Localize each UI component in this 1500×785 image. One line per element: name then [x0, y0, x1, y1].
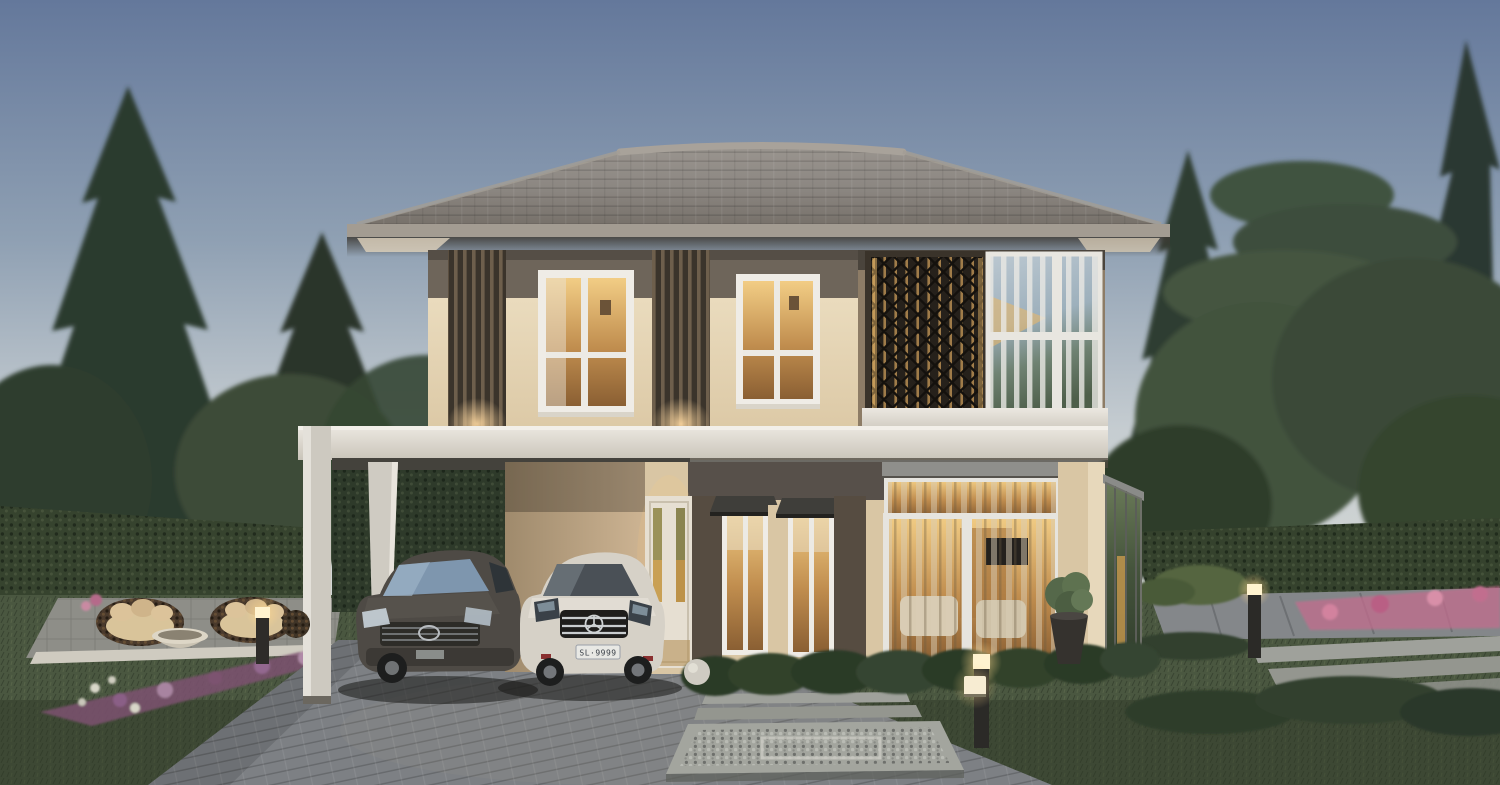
mercedes-grille: [560, 610, 628, 638]
pebble-platform: [666, 721, 964, 782]
wicker-sphere: [282, 610, 310, 638]
scene-photo: SL·9999: [0, 0, 1500, 785]
license-plate: SL·9999: [576, 645, 620, 659]
eave-fascia: [347, 224, 1170, 237]
ground-floor: [637, 462, 1105, 674]
recess-band-dark: [688, 462, 886, 500]
sliding-glass-door: [882, 462, 1062, 662]
stone-sphere-highlight: [688, 663, 698, 673]
bedroom-window-left: [538, 270, 634, 417]
lattice-bay: [858, 250, 1108, 437]
corner-glass-window: [988, 254, 1100, 418]
slat-column-center: [651, 250, 711, 450]
house-render: SL·9999: [0, 0, 1500, 785]
ground-cube-light: [952, 663, 998, 709]
lattice-screen: [868, 254, 986, 420]
toyota-grille: [380, 622, 480, 646]
conservatory: [1103, 474, 1144, 655]
upper-floor: [428, 250, 1108, 450]
license-plate-text: SL·9999: [579, 649, 616, 658]
bedroom-window-center: [736, 274, 820, 409]
slat-column-left: [447, 250, 507, 450]
stone-sphere: [684, 659, 710, 685]
